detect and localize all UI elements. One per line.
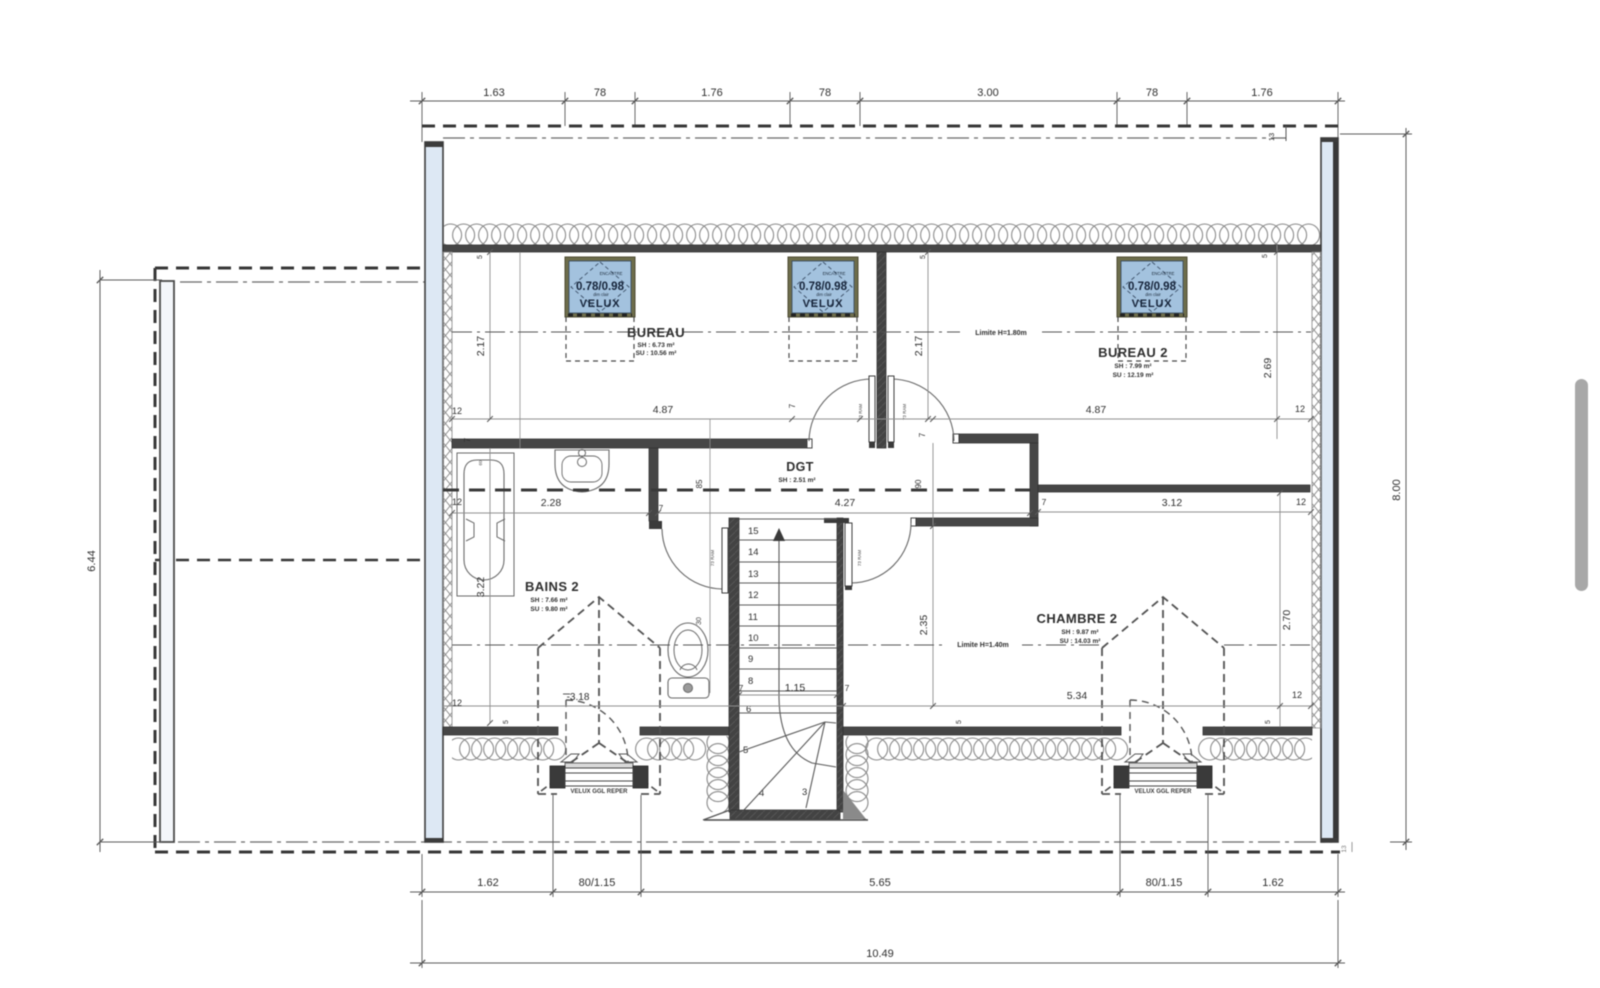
svg-text:78: 78 bbox=[1146, 87, 1158, 99]
svg-text:8: 8 bbox=[748, 676, 753, 687]
svg-text:30: 30 bbox=[696, 617, 703, 625]
svg-text:2.35: 2.35 bbox=[918, 615, 930, 636]
svg-text:-3.18: -3.18 bbox=[567, 692, 590, 703]
svg-text:73 RAM: 73 RAM bbox=[858, 404, 863, 421]
svg-text:1.63: 1.63 bbox=[483, 87, 504, 99]
svg-text:Limite H=1.40m: Limite H=1.40m bbox=[957, 642, 1009, 649]
svg-text:3.00: 3.00 bbox=[977, 87, 998, 99]
svg-text:4.87: 4.87 bbox=[1086, 404, 1107, 416]
svg-text:12: 12 bbox=[748, 590, 759, 601]
svg-text:SU : 12.19 m²: SU : 12.19 m² bbox=[1113, 372, 1155, 379]
svg-text:3.22: 3.22 bbox=[475, 577, 487, 598]
svg-text:ENCASTRE: ENCASTRE bbox=[823, 271, 846, 276]
svg-text:78: 78 bbox=[819, 87, 831, 99]
svg-text:SH : 9.87 m²: SH : 9.87 m² bbox=[1061, 629, 1099, 636]
svg-text:VELUX GGL REPER: VELUX GGL REPER bbox=[571, 789, 629, 795]
svg-text:15: 15 bbox=[748, 526, 759, 537]
svg-text:7: 7 bbox=[739, 683, 744, 693]
svg-text:5.34: 5.34 bbox=[1067, 690, 1088, 702]
svg-text:ENCASTRE: ENCASTRE bbox=[1152, 271, 1175, 276]
svg-text:10.49: 10.49 bbox=[866, 948, 894, 960]
svg-text:11: 11 bbox=[748, 612, 758, 623]
svg-text:14: 14 bbox=[748, 547, 759, 558]
svg-text:SH : 7.66 m²: SH : 7.66 m² bbox=[530, 597, 568, 604]
svg-text:4.27: 4.27 bbox=[835, 497, 856, 509]
svg-text:dim clair: dim clair bbox=[593, 292, 609, 297]
svg-text:85: 85 bbox=[695, 479, 704, 488]
svg-text:4.87: 4.87 bbox=[653, 404, 674, 416]
svg-text:3: 3 bbox=[802, 787, 807, 798]
svg-text:2.70: 2.70 bbox=[1281, 610, 1293, 631]
svg-text:5: 5 bbox=[1265, 720, 1272, 724]
svg-text:BUREAU: BUREAU bbox=[627, 325, 685, 340]
svg-text:1.15: 1.15 bbox=[785, 682, 806, 694]
svg-text:7: 7 bbox=[788, 403, 797, 408]
svg-text:CHAMBRE 2: CHAMBRE 2 bbox=[1037, 611, 1118, 626]
svg-text:9: 9 bbox=[748, 654, 753, 665]
svg-text:8.00: 8.00 bbox=[1391, 479, 1403, 500]
svg-text:80/1.15: 80/1.15 bbox=[579, 877, 616, 889]
svg-text:13: 13 bbox=[1267, 133, 1276, 141]
svg-text:VELUX: VELUX bbox=[580, 298, 621, 310]
svg-text:2.17: 2.17 bbox=[475, 336, 487, 357]
svg-text:13: 13 bbox=[748, 569, 759, 580]
svg-text:2.28: 2.28 bbox=[541, 497, 562, 509]
svg-text:dim clair: dim clair bbox=[816, 292, 832, 297]
svg-text:Limite H=1.80m: Limite H=1.80m bbox=[975, 330, 1027, 337]
svg-text:1.76: 1.76 bbox=[701, 87, 722, 99]
svg-text:1.62: 1.62 bbox=[477, 877, 498, 889]
svg-text:3.12: 3.12 bbox=[1162, 497, 1183, 509]
svg-text:12: 12 bbox=[1292, 690, 1302, 700]
svg-text:dim clair: dim clair bbox=[1145, 292, 1161, 297]
svg-text:12: 12 bbox=[1296, 497, 1306, 507]
svg-text:SH : 2.51 m²: SH : 2.51 m² bbox=[778, 477, 816, 484]
svg-text:VELUX GGL REPER: VELUX GGL REPER bbox=[1135, 789, 1193, 795]
svg-text:78: 78 bbox=[594, 87, 606, 99]
svg-text:SU : 9.80 m²: SU : 9.80 m² bbox=[530, 606, 568, 613]
svg-text:7: 7 bbox=[845, 683, 850, 693]
svg-text:7: 7 bbox=[463, 437, 472, 442]
svg-text:5: 5 bbox=[477, 255, 484, 259]
svg-text:1.62: 1.62 bbox=[1262, 877, 1283, 889]
svg-text:12: 12 bbox=[452, 698, 462, 708]
svg-text:73 RAM: 73 RAM bbox=[902, 404, 907, 421]
svg-text:SH : 6.73 m²: SH : 6.73 m² bbox=[637, 342, 675, 349]
svg-text:12: 12 bbox=[1295, 404, 1305, 414]
svg-text:BUREAU 2: BUREAU 2 bbox=[1098, 345, 1168, 360]
svg-text:SH : 7.99 m²: SH : 7.99 m² bbox=[1114, 363, 1152, 370]
svg-text:7: 7 bbox=[1042, 497, 1047, 507]
svg-text:2.17: 2.17 bbox=[913, 336, 925, 357]
svg-text:73 RAM: 73 RAM bbox=[857, 550, 862, 567]
svg-text:1.76: 1.76 bbox=[1251, 87, 1272, 99]
svg-text:VELUX: VELUX bbox=[803, 298, 844, 310]
svg-text:6.44: 6.44 bbox=[86, 550, 98, 571]
svg-text:90: 90 bbox=[914, 479, 923, 488]
svg-text:12: 12 bbox=[452, 406, 462, 416]
svg-text:5: 5 bbox=[503, 720, 510, 724]
svg-text:SU : 10.56 m²: SU : 10.56 m² bbox=[636, 350, 678, 357]
svg-text:73 RAM: 73 RAM bbox=[710, 550, 715, 567]
svg-text:BAINS 2: BAINS 2 bbox=[525, 579, 579, 594]
svg-text:5.65: 5.65 bbox=[869, 877, 890, 889]
svg-text:5: 5 bbox=[920, 255, 927, 259]
svg-text:13: 13 bbox=[1341, 845, 1348, 853]
svg-text:ENCASTRE: ENCASTRE bbox=[600, 271, 623, 276]
svg-text:2.69: 2.69 bbox=[1262, 358, 1274, 379]
svg-text:5: 5 bbox=[1262, 254, 1269, 258]
svg-text:DGT: DGT bbox=[786, 460, 814, 474]
svg-text:SU : 14.03 m²: SU : 14.03 m² bbox=[1060, 638, 1102, 645]
svg-text:10: 10 bbox=[748, 633, 759, 644]
svg-text:7: 7 bbox=[918, 432, 927, 437]
svg-text:12: 12 bbox=[452, 497, 462, 507]
svg-text:VELUX: VELUX bbox=[1132, 298, 1173, 310]
svg-text:5: 5 bbox=[956, 720, 963, 724]
svg-text:60: 60 bbox=[478, 460, 483, 466]
svg-text:80/1.15: 80/1.15 bbox=[1146, 877, 1183, 889]
